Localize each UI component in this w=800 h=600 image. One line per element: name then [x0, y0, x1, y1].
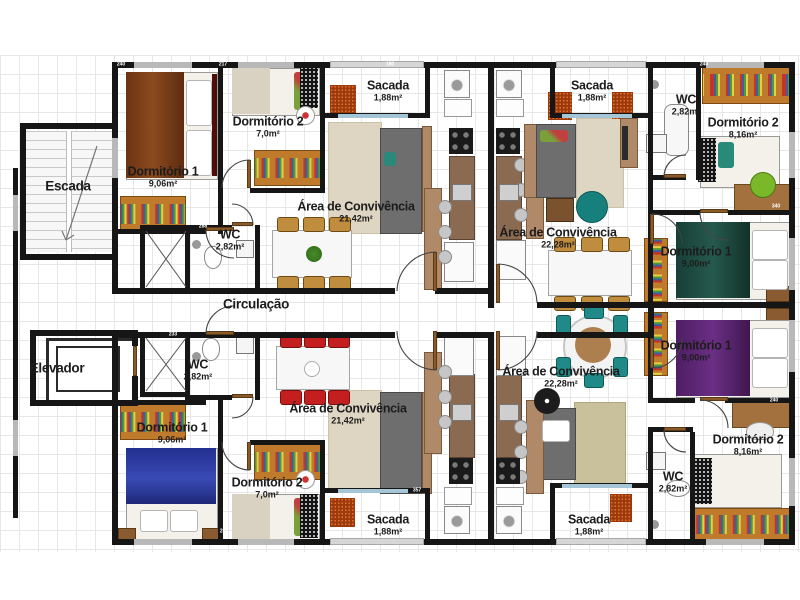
wall: [435, 288, 490, 294]
wall: [320, 62, 325, 193]
room-label-tr-convivencia: Área de Convivência22,28m²: [499, 226, 616, 249]
pillow: [170, 510, 198, 532]
pillow: [186, 80, 212, 126]
wall: [140, 225, 188, 230]
wall: [648, 210, 700, 215]
dimension-label: 240: [700, 63, 708, 68]
door-leaf: [496, 264, 500, 303]
wall: [690, 432, 695, 545]
wardrobe: [702, 66, 794, 104]
pillow: [752, 260, 788, 290]
wall: [255, 225, 260, 288]
sliding-door: [562, 484, 632, 488]
cooktop: [449, 128, 473, 154]
room-label-tl-wc: WC2,82m²: [216, 228, 245, 251]
bar-stool: [514, 208, 528, 222]
window: [13, 420, 18, 456]
room-label-bl-wc: WC2,82m²: [184, 358, 213, 381]
pillow: [718, 142, 734, 168]
floor-plan: Escada Elevador Circulação Dormitório 19…: [0, 0, 800, 600]
wall: [550, 483, 555, 544]
door-leaf: [664, 427, 686, 431]
bar-stool: [438, 200, 452, 214]
window: [238, 539, 294, 545]
duvet: [126, 448, 216, 504]
wall: [20, 123, 118, 129]
wall: [250, 440, 325, 445]
room-label-elevador: Elevador: [30, 362, 85, 377]
door-leaf: [433, 252, 437, 291]
laundry-sink: [444, 99, 472, 117]
window: [789, 238, 795, 290]
wall: [425, 62, 430, 118]
washing-machine: [496, 506, 522, 534]
wall: [218, 62, 223, 190]
dimension-label: 240: [117, 63, 125, 68]
room-label-tr-sacada: Sacada1,88m²: [571, 79, 613, 102]
sliding-door: [338, 114, 408, 118]
dimension-label: 217: [219, 63, 227, 68]
wall: [118, 288, 395, 294]
wall: [550, 62, 555, 118]
window: [789, 132, 795, 178]
storage-box: [300, 66, 318, 108]
room-label-bl-convivencia: Área de Convivência21,42m²: [289, 402, 406, 425]
bar-counter: [526, 400, 544, 494]
blanket: [232, 68, 270, 114]
room-label-tr-dormitorio2: Dormitório 28,16m²: [708, 116, 779, 139]
room-label-br-sacada: Sacada1,88m²: [568, 513, 610, 536]
duvet: [126, 72, 184, 178]
laundry-sink: [444, 487, 472, 505]
wall: [112, 62, 795, 68]
blanket: [232, 494, 270, 540]
headboard: [212, 74, 217, 176]
table-bowl: [304, 361, 320, 377]
wall: [218, 400, 223, 450]
pillow: [752, 358, 788, 388]
door-leaf: [206, 331, 234, 335]
balcony-railing: [556, 61, 646, 68]
room-label-escada: Escada: [45, 180, 90, 195]
washbasin: [236, 336, 254, 354]
area-rug: [574, 402, 626, 488]
door-leaf: [700, 209, 728, 213]
door-leaf: [133, 346, 137, 376]
wall: [725, 398, 795, 403]
room-label-br-dormitorio1: Dormitório 19,00m²: [661, 339, 732, 362]
desk-chair: [750, 172, 776, 198]
wall: [435, 332, 490, 338]
wall: [425, 488, 430, 544]
dimension-label: 188: [630, 399, 638, 404]
door-leaf: [433, 331, 437, 370]
washing-machine: [444, 506, 470, 534]
washing-machine: [496, 70, 522, 98]
wall: [696, 62, 701, 180]
doormat: [330, 85, 356, 115]
pillow: [140, 510, 168, 532]
dimension-label: 240: [770, 399, 778, 404]
door-leaf: [664, 174, 686, 178]
sofa-pillow: [542, 420, 570, 442]
door-leaf: [650, 338, 654, 368]
shower-head: [192, 240, 201, 249]
wall: [648, 62, 653, 180]
door-leaf: [247, 442, 251, 470]
balcony-railing: [330, 61, 424, 68]
room-label-bl-dormitorio2: Dormitório 27,0m²: [232, 476, 303, 499]
dimension-label: 257: [220, 530, 228, 535]
door-leaf: [247, 160, 251, 188]
window: [134, 62, 192, 68]
room-label-tl-dormitorio1: Dormitório 19,06m²: [128, 165, 199, 188]
room-label-br-dormitorio2: Dormitório 28,16m²: [713, 433, 784, 456]
room-label-tl-dormitorio2: Dormitório 27,0m²: [233, 115, 304, 138]
bar-stool: [438, 225, 452, 239]
doormat: [610, 494, 632, 522]
wall: [20, 123, 26, 260]
dining-table: [548, 250, 632, 296]
cooktop: [496, 458, 520, 484]
wall: [118, 400, 206, 405]
bar-stool: [514, 445, 528, 459]
room-label-circulacao: Circulação: [223, 298, 289, 313]
balcony-railing: [330, 538, 424, 545]
window: [13, 195, 18, 231]
wall: [140, 332, 145, 397]
door-leaf: [650, 214, 654, 244]
wall: [728, 210, 795, 215]
wall: [185, 395, 232, 400]
balcony-railing: [556, 538, 646, 545]
wall: [140, 225, 145, 288]
sofa-pillow: [384, 152, 396, 166]
bar-stool: [438, 365, 452, 379]
room-label-tl-convivencia: Área de Convivência21,42m²: [297, 200, 414, 223]
laundry-sink: [496, 487, 524, 505]
window: [789, 320, 795, 372]
wall: [648, 398, 695, 403]
wall: [537, 302, 795, 308]
door-leaf: [700, 397, 728, 401]
cooktop: [449, 458, 473, 484]
wall: [255, 332, 260, 400]
wall: [112, 330, 118, 545]
cooktop: [496, 128, 520, 154]
door-leaf: [232, 394, 253, 398]
pillow: [752, 230, 788, 260]
wardrobe: [254, 150, 322, 186]
room-label-tr-wc: WC2,82m²: [672, 93, 701, 116]
bar-stool: [438, 390, 452, 404]
dimension-label: 357: [413, 489, 421, 494]
sofa-pillow: [540, 130, 568, 142]
door-leaf: [232, 222, 253, 226]
side-table: [546, 198, 574, 222]
bar-stool: [438, 415, 452, 429]
room-label-br-convivencia: Área de Convivência22,28m²: [502, 365, 619, 388]
kitchen-sink: [452, 404, 472, 421]
dimension-label: 288: [199, 225, 207, 230]
wall: [140, 392, 188, 397]
doormat: [330, 498, 355, 527]
dimension-label: 180: [386, 63, 394, 68]
room-label-br-wc: WC2,82m²: [659, 470, 688, 493]
table-plant: [306, 246, 322, 262]
dimension-label: 112: [413, 110, 421, 115]
bar-stool: [514, 420, 528, 434]
wardrobe: [694, 508, 794, 542]
dimension-label: 340: [772, 205, 780, 210]
sliding-door: [562, 114, 632, 118]
wall: [185, 225, 190, 288]
room-label-tl-sacada: Sacada1,88m²: [367, 79, 409, 102]
wall: [250, 188, 325, 193]
kitchen-sink: [499, 404, 519, 421]
wall: [488, 62, 494, 302]
door-leaf: [496, 331, 500, 370]
pillow: [752, 328, 788, 358]
window: [706, 539, 764, 545]
window: [112, 138, 118, 178]
window: [134, 539, 192, 545]
speaker: [534, 388, 560, 414]
wall: [537, 332, 648, 338]
window: [706, 62, 764, 68]
wall: [488, 332, 494, 545]
storage-box: [694, 458, 712, 504]
room-label-bl-dormitorio1: Dormitório 19,06m²: [137, 421, 208, 444]
storage-box: [300, 494, 318, 538]
dimension-label: 233: [169, 333, 177, 338]
wall: [648, 302, 654, 338]
chair: [277, 217, 299, 232]
window: [789, 458, 795, 506]
tv-screen: [622, 126, 628, 160]
pouf: [576, 191, 608, 223]
wall: [648, 427, 653, 545]
sliding-door: [338, 489, 408, 493]
room-label-tr-dormitorio1: Dormitório 19,00m²: [661, 245, 732, 268]
laundry-sink: [496, 99, 524, 117]
kitchen-sink: [499, 184, 519, 201]
window: [238, 62, 294, 68]
room-label-bl-sacada: Sacada1,88m²: [367, 513, 409, 536]
wall: [20, 254, 118, 260]
washing-machine: [444, 70, 470, 98]
kitchen-sink: [452, 184, 472, 201]
bar-stool: [438, 250, 452, 264]
